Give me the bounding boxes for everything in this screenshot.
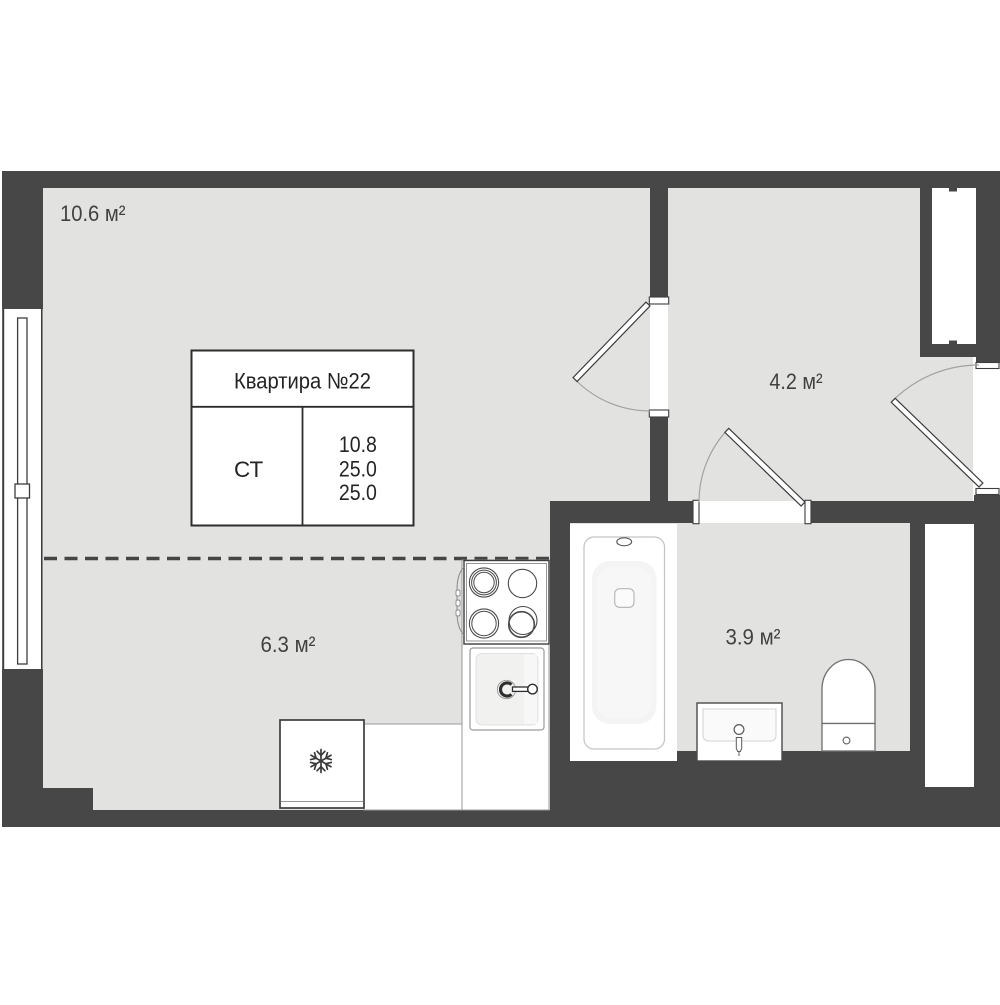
svg-text:6.3 м²: 6.3 м²: [261, 632, 316, 657]
svg-text:4.2 м²: 4.2 м²: [769, 369, 823, 394]
svg-text:25.0: 25.0: [339, 456, 377, 481]
svg-text:Квартира №22: Квартира №22: [234, 369, 371, 394]
svg-text:25.0: 25.0: [339, 480, 377, 505]
svg-text:3.9 м²: 3.9 м²: [726, 624, 781, 649]
svg-text:СТ: СТ: [234, 457, 263, 482]
svg-text:10.8: 10.8: [339, 432, 377, 457]
svg-text:10.6 м²: 10.6 м²: [60, 201, 126, 226]
